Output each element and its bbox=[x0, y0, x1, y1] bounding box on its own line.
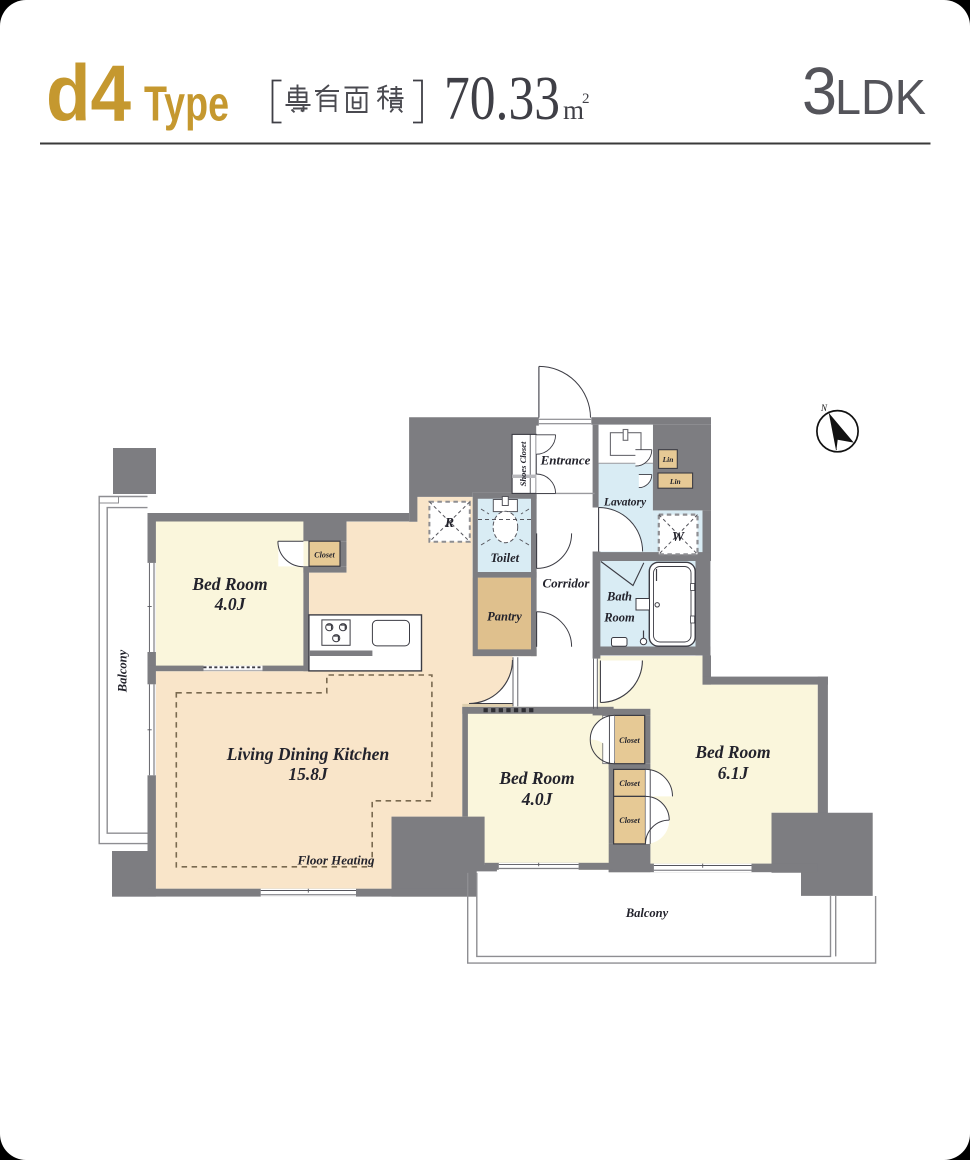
svg-text:Closet: Closet bbox=[314, 551, 335, 560]
svg-text:Shoes Closet: Shoes Closet bbox=[518, 441, 528, 486]
svg-text:Closet: Closet bbox=[619, 779, 640, 788]
svg-text:Balcony: Balcony bbox=[625, 906, 669, 920]
svg-text:W: W bbox=[672, 529, 685, 544]
svg-text:Toilet: Toilet bbox=[490, 551, 519, 565]
svg-text:Lin: Lin bbox=[669, 477, 681, 486]
svg-text:Type: Type bbox=[144, 78, 229, 132]
svg-text:m: m bbox=[563, 95, 584, 125]
svg-text:Lin: Lin bbox=[662, 455, 674, 464]
svg-text:d4: d4 bbox=[46, 49, 131, 138]
svg-text:Living Dining Kitchen: Living Dining Kitchen bbox=[226, 744, 389, 764]
svg-text:N: N bbox=[820, 403, 828, 413]
svg-text:4.0J: 4.0J bbox=[214, 594, 247, 614]
svg-text:R: R bbox=[444, 515, 454, 530]
svg-text:Bed Room: Bed Room bbox=[694, 742, 770, 762]
svg-text:Bed Room: Bed Room bbox=[191, 574, 267, 594]
svg-text:Lavatory: Lavatory bbox=[603, 497, 647, 509]
svg-text:Room: Room bbox=[603, 611, 635, 625]
svg-text:Floor Heating: Floor Heating bbox=[297, 853, 375, 868]
svg-text:Closet: Closet bbox=[619, 736, 640, 745]
svg-text:Corridor: Corridor bbox=[543, 576, 591, 591]
svg-text:LDK: LDK bbox=[835, 70, 926, 125]
svg-text:6.1J: 6.1J bbox=[718, 763, 750, 783]
svg-text:Bed Room: Bed Room bbox=[498, 768, 574, 788]
svg-text:3: 3 bbox=[802, 55, 837, 129]
svg-text:Bath: Bath bbox=[606, 590, 632, 604]
svg-text:Pantry: Pantry bbox=[487, 610, 522, 624]
svg-text:2: 2 bbox=[582, 91, 590, 107]
svg-text:Balcony: Balcony bbox=[116, 649, 130, 693]
svg-text:Entrance: Entrance bbox=[540, 453, 591, 468]
svg-text:70.33: 70.33 bbox=[444, 65, 560, 133]
svg-text:4.0J: 4.0J bbox=[521, 789, 554, 809]
svg-text:15.8J: 15.8J bbox=[288, 764, 329, 784]
svg-text:Closet: Closet bbox=[619, 816, 640, 825]
